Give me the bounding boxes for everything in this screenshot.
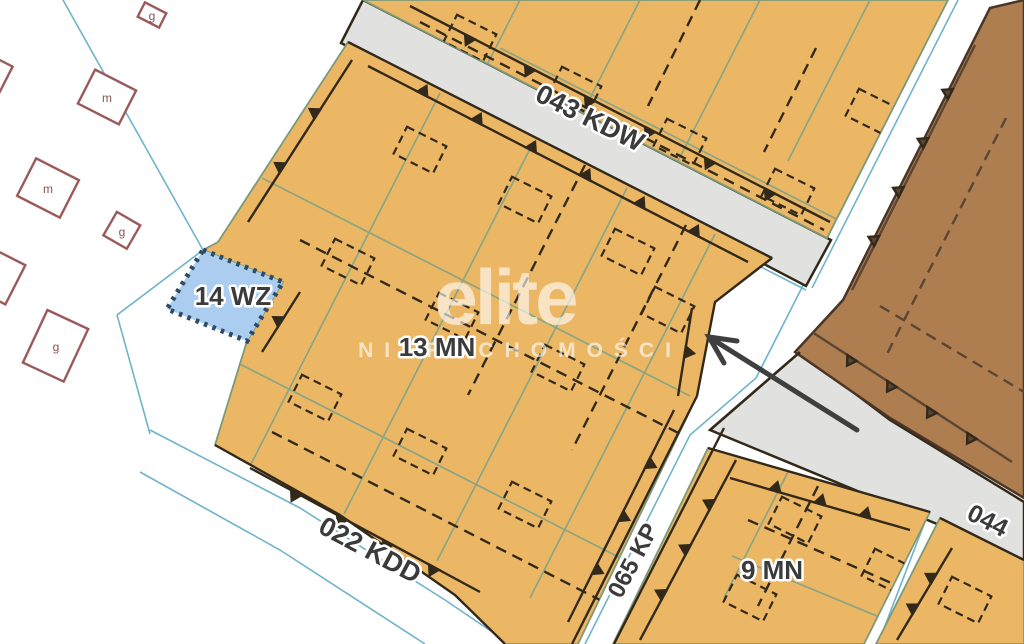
zoning-map: g m m g g elite NIERUCHOMOŚCI 043 KDW 02… <box>0 0 1024 644</box>
zone-label-14wz: 14 WZ <box>195 281 272 311</box>
building-label: g <box>119 225 126 239</box>
map-canvas[interactable]: g m m g g elite NIERUCHOMOŚCI 043 KDW 02… <box>0 0 1024 644</box>
watermark-brand: elite <box>434 253 576 341</box>
building-label: m <box>43 182 53 196</box>
building-label: g <box>53 340 60 354</box>
building-label: m <box>102 91 112 105</box>
building-label: g <box>149 9 156 23</box>
zone-label-9mn: 9 MN <box>741 555 803 585</box>
zone-label-13mn: 13 MN <box>399 332 476 362</box>
